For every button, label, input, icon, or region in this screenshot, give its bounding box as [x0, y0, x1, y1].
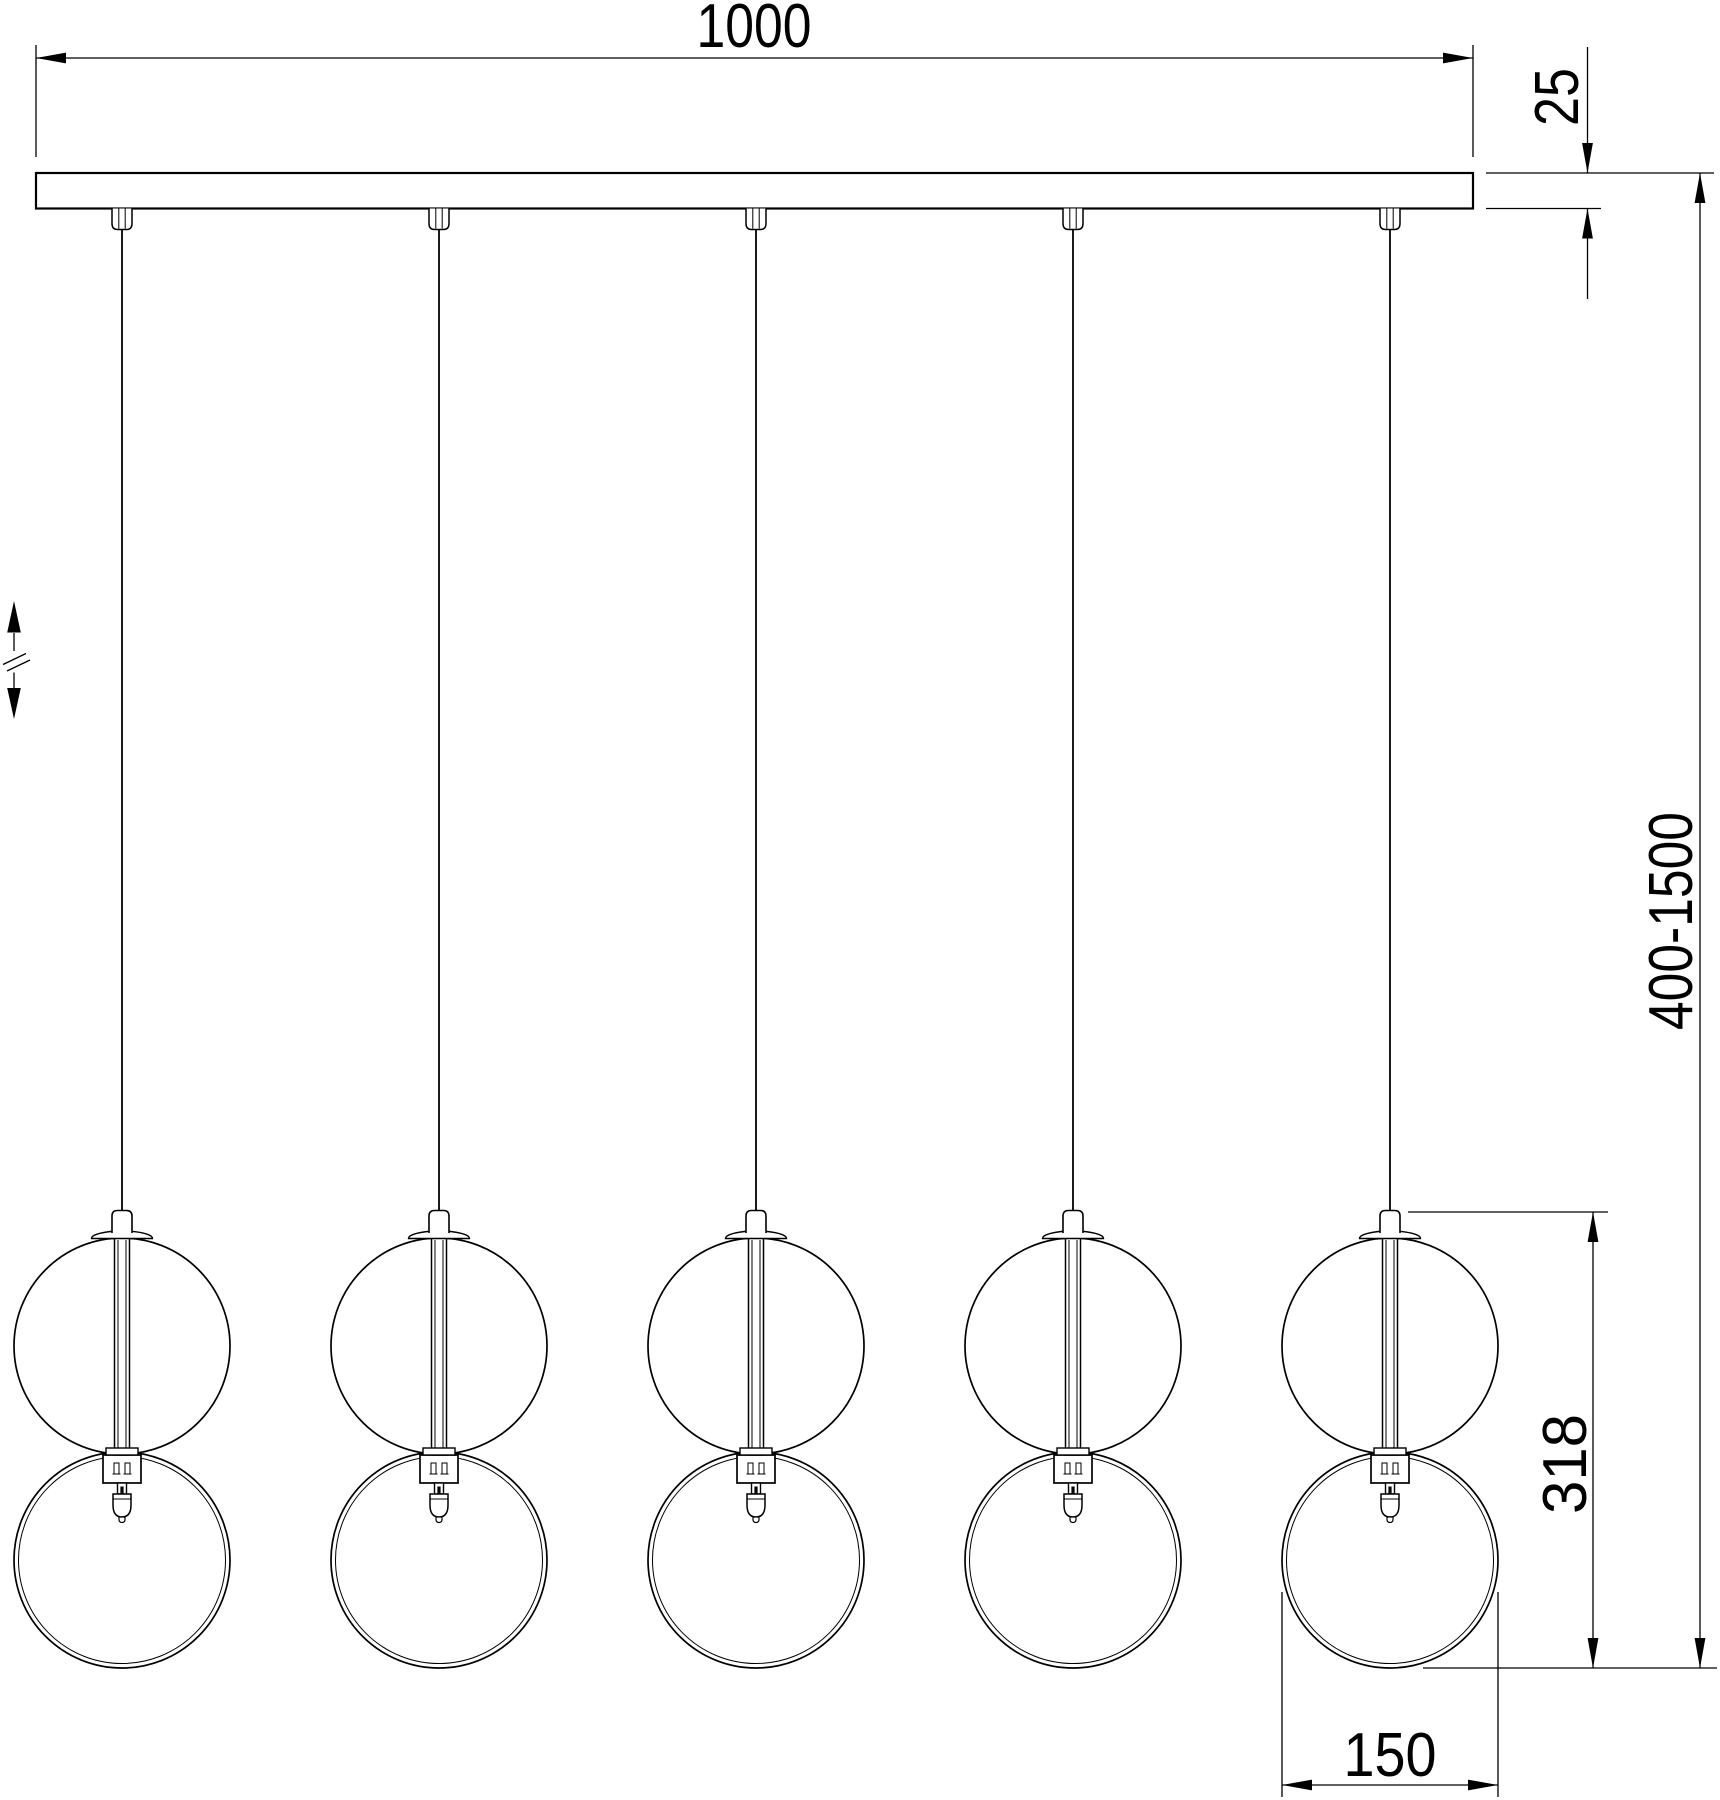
dim-label-overall-width: 1000 [697, 0, 812, 61]
pendant [648, 209, 864, 1669]
dim-overall-width: 1000 [36, 0, 1473, 157]
adjust-arrow-up-head [7, 601, 21, 633]
pendant [1282, 209, 1498, 1669]
dim-ring-diameter: 150 [1282, 1592, 1498, 1797]
pendant [14, 209, 230, 1669]
pendant-light-dimension-drawing: 1000 25 400-1500 318 150 [0, 0, 1720, 1800]
dim-canopy-thickness: 25 [1486, 47, 1714, 299]
dim-label-suspension-range: 400-1500 [1637, 812, 1706, 1030]
adjust-arrow-down-head [7, 688, 21, 719]
dim-label-pendant-height: 318 [1531, 1414, 1600, 1514]
dim-pendant-height: 318 [1408, 1212, 1717, 1668]
dim-label-canopy-thickness: 25 [1523, 68, 1592, 126]
pendant [965, 209, 1181, 1669]
pendant [331, 209, 547, 1669]
dim-suspension-range: 400-1500 [1637, 173, 1706, 1668]
canopy-bar [36, 173, 1473, 209]
pendants-group [14, 209, 1498, 1669]
height-adjustment-icon [3, 601, 30, 719]
dim-label-ring-diameter: 150 [1344, 1721, 1437, 1790]
technical-drawing-sheet: 1000 25 400-1500 318 150 [0, 0, 1720, 1800]
